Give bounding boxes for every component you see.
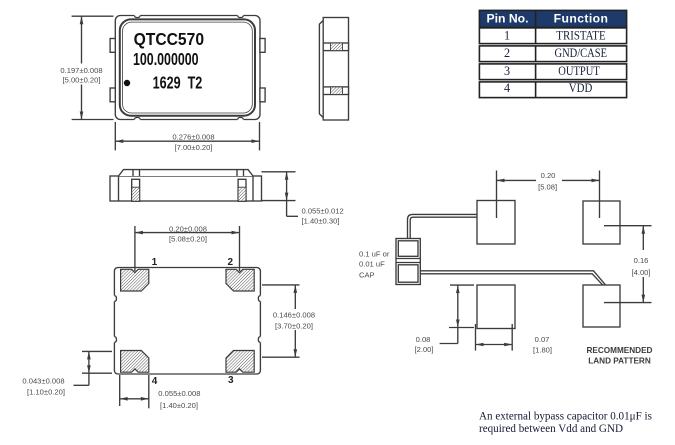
svg-text:LAND PATTERN: LAND PATTERN — [588, 357, 651, 366]
svg-text:required between Vdd and GND: required between Vdd and GND — [479, 423, 623, 435]
svg-text:0.043±0.008: 0.043±0.008 — [22, 377, 64, 386]
svg-text:0.07: 0.07 — [535, 335, 550, 344]
svg-text:An external bypass capacitor 0: An external bypass capacitor 0.01μF is — [479, 411, 652, 423]
svg-text:1: 1 — [152, 257, 158, 268]
svg-text:[5.08]: [5.08] — [538, 183, 557, 192]
svg-text:0.01 uF: 0.01 uF — [359, 260, 385, 269]
svg-text:4: 4 — [504, 81, 510, 95]
svg-text:0.197±0.008: 0.197±0.008 — [60, 66, 102, 75]
svg-text:[2.00]: [2.00] — [415, 345, 434, 354]
svg-text:0.055±0.012: 0.055±0.012 — [302, 207, 344, 216]
svg-text:0.1 uF or: 0.1 uF or — [359, 250, 390, 259]
svg-text:0.276±0.008: 0.276±0.008 — [172, 132, 214, 141]
svg-text:3: 3 — [228, 375, 234, 386]
svg-text:GND/CASE: GND/CASE — [555, 46, 608, 60]
svg-text:0.20±0.008: 0.20±0.008 — [169, 225, 207, 234]
svg-text:[1.80]: [1.80] — [533, 346, 552, 355]
svg-text:0.16: 0.16 — [634, 256, 649, 265]
svg-text:[5.00±0.20]: [5.00±0.20] — [63, 76, 101, 85]
svg-text:2: 2 — [504, 46, 510, 60]
svg-text:VDD: VDD — [569, 81, 593, 95]
svg-text:Function: Function — [554, 12, 609, 26]
svg-text:Pin No.: Pin No. — [487, 12, 529, 26]
svg-text:1: 1 — [504, 28, 510, 42]
svg-text:2: 2 — [228, 257, 234, 268]
svg-text:[5.08±0.20]: [5.08±0.20] — [169, 235, 207, 244]
svg-text:[4.00]: [4.00] — [632, 268, 651, 277]
svg-text:0.20: 0.20 — [541, 171, 556, 180]
svg-text:0.146±0.008: 0.146±0.008 — [273, 311, 315, 320]
svg-text:0.055±0.008: 0.055±0.008 — [158, 389, 200, 398]
svg-text:1629 T2: 1629 T2 — [153, 73, 203, 93]
svg-text:[1.40±0.30]: [1.40±0.30] — [302, 217, 340, 226]
svg-text:4: 4 — [152, 376, 158, 387]
svg-text:CAP: CAP — [359, 271, 375, 280]
svg-text:[3.70±0.20]: [3.70±0.20] — [275, 322, 313, 331]
svg-text:OUTPUT: OUTPUT — [558, 64, 600, 78]
svg-text:0.08: 0.08 — [416, 335, 431, 344]
svg-text:TRISTATE: TRISTATE — [556, 28, 605, 42]
svg-text:QTCC570: QTCC570 — [134, 29, 204, 49]
svg-text:[7.00±0.20]: [7.00±0.20] — [175, 143, 213, 152]
svg-text:3: 3 — [504, 64, 510, 78]
svg-text:[1.40±0.20]: [1.40±0.20] — [160, 401, 198, 410]
svg-text:[1.10±0.20]: [1.10±0.20] — [27, 388, 65, 397]
svg-text:100.000000: 100.000000 — [133, 50, 199, 70]
svg-text:RECOMMENDED: RECOMMENDED — [587, 346, 653, 355]
